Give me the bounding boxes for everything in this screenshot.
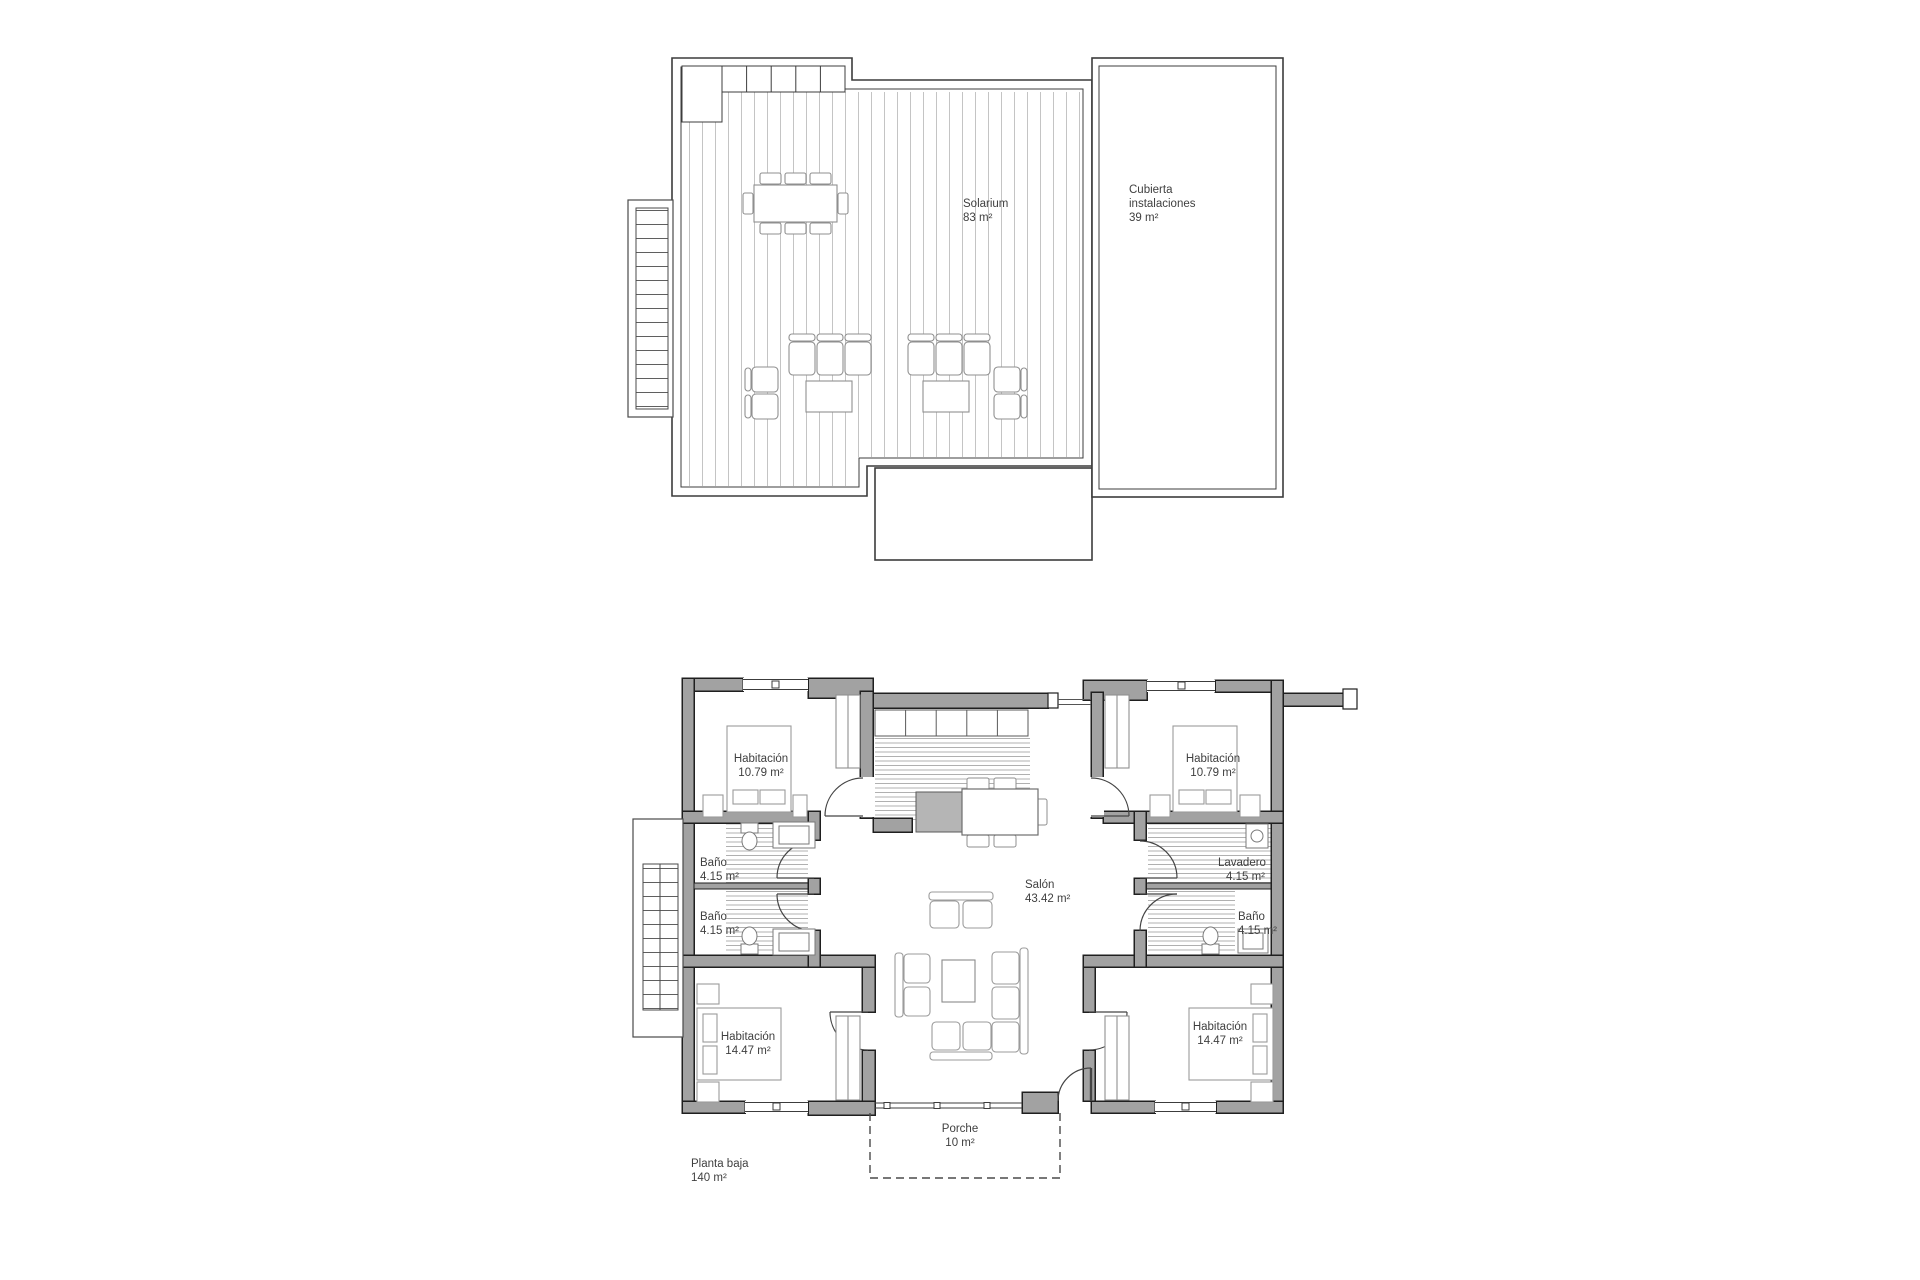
label-living-room: Salón [1025, 879, 1054, 891]
area-living-room: 43.42 m² [1025, 893, 1071, 905]
area-bath-ul: 4.15 m² [700, 871, 739, 883]
area-bath-ll: 4.15 m² [700, 925, 739, 937]
label-bedroom-bl: Habitación [721, 1031, 775, 1043]
cubierta-area: 39 m² [1129, 212, 1159, 224]
label-laundry: Lavadero [1218, 857, 1266, 869]
label-floor-title: Planta baja [691, 1158, 749, 1170]
window-top-left [743, 678, 808, 691]
label-bath-r: Baño [1238, 911, 1265, 923]
roof-stairs [628, 200, 673, 417]
area-bedroom-br: 14.47 m² [1197, 1035, 1243, 1047]
area-porch: 10 m² [945, 1137, 975, 1149]
ground-stairs [633, 819, 683, 1037]
laundry-appliance [1246, 824, 1268, 848]
sliding-glass-door [875, 1103, 1022, 1109]
cubierta-label-2: instalaciones [1129, 198, 1196, 210]
living-room-coffee-table [942, 960, 975, 1002]
area-bedroom-bl: 14.47 m² [725, 1045, 771, 1057]
deck-boarding [650, 80, 1100, 500]
window-top-right [1147, 680, 1215, 692]
roof-plan: Solarium 83 m² Cubierta instalaciones 39… [628, 58, 1283, 560]
area-bath-r: 4.15 m² [1238, 925, 1277, 937]
bed-bottom-left [697, 984, 781, 1102]
floorplan-sheet: Solarium 83 m² Cubierta instalaciones 39… [0, 0, 1920, 1280]
area-bedroom-tr: 10.79 m² [1190, 767, 1236, 779]
equipment-roof-box [1092, 58, 1283, 497]
ground-floor-plan: Habitación 10.79 m² Habitación 10.79 m² … [633, 678, 1357, 1184]
area-laundry: 4.15 m² [1226, 871, 1265, 883]
label-porch: Porche [942, 1123, 978, 1135]
door-bedroom-top-left [825, 778, 863, 816]
window-bottom-left [745, 1101, 808, 1113]
bath-lower-left-fixtures [741, 927, 815, 955]
solarium-label: Solarium [963, 198, 1008, 210]
living-room-sofa [895, 892, 1028, 1060]
roof-protrusion [875, 468, 1092, 560]
kitchen-dining-table [962, 789, 1038, 835]
label-bedroom-tl: Habitación [734, 753, 788, 765]
cubierta-label-1: Cubierta [1129, 184, 1173, 196]
solarium-area: 83 m² [963, 212, 993, 224]
kitchen-island [916, 792, 962, 832]
label-bedroom-br: Habitación [1193, 1021, 1247, 1033]
area-bedroom-tl: 10.79 m² [738, 767, 784, 779]
label-bedroom-tr: Habitación [1186, 753, 1240, 765]
bath-upper-left-fixtures [741, 822, 815, 850]
label-bath-ll: Baño [700, 911, 727, 923]
label-bath-ul: Baño [700, 857, 727, 869]
window-bottom-right [1155, 1101, 1216, 1113]
area-floor-title: 140 m² [691, 1172, 727, 1184]
kitchen-cabinets [875, 710, 1028, 736]
